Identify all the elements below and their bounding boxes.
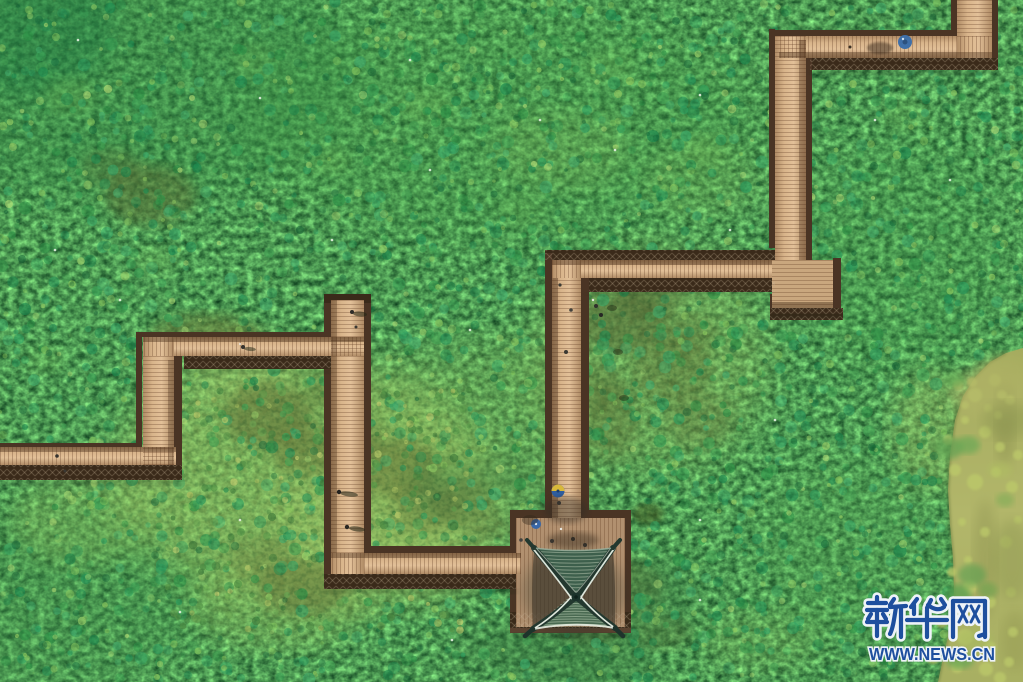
svg-text:WWW.NEWS.CN: WWW.NEWS.CN	[869, 644, 995, 664]
